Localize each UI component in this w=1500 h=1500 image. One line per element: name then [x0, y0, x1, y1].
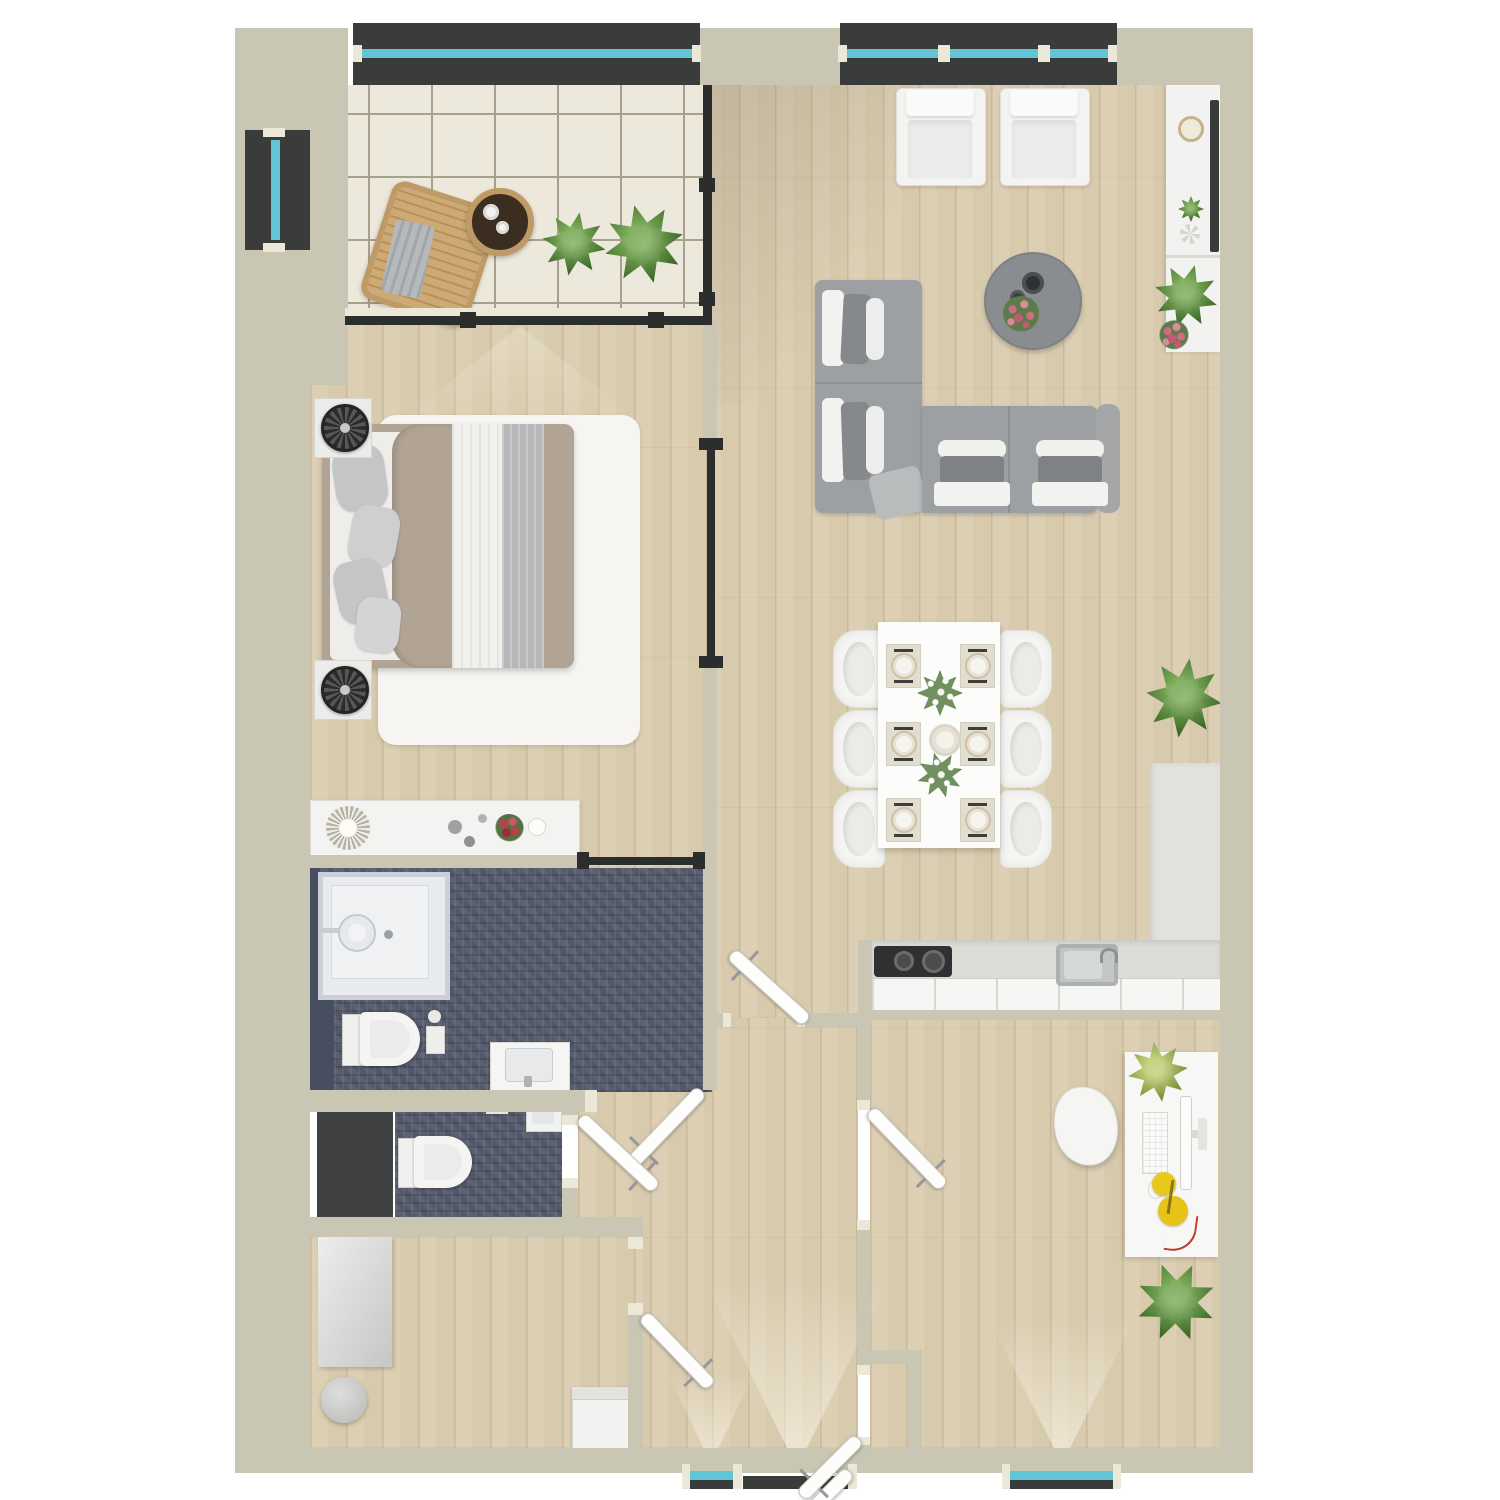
- plate-icon: [965, 807, 991, 833]
- decor-bowl-icon: [448, 820, 462, 834]
- sofa-pillow: [940, 456, 1004, 484]
- door-track-cap: [577, 852, 589, 869]
- rail-post: [648, 312, 664, 328]
- chair-seat: [1010, 722, 1042, 777]
- sofa-section-divider: [815, 382, 922, 384]
- decor-bowl-icon: [464, 836, 475, 847]
- glazing-office-window: [1010, 1471, 1113, 1480]
- plate-icon: [965, 653, 991, 679]
- rail-post: [699, 178, 715, 192]
- plate-icon: [965, 731, 991, 757]
- sink-bowl: [1064, 951, 1102, 979]
- sill-office-window: [1010, 1480, 1113, 1489]
- door-jamb: [628, 1303, 643, 1315]
- storage-cabinet: [318, 1237, 392, 1367]
- kitchen-cabinet-fronts: [872, 978, 1220, 1011]
- window-end-cap: [353, 45, 362, 62]
- place-setting: [960, 798, 995, 842]
- wall-corridor-stub-left: [703, 1013, 723, 1027]
- monitor-icon: [1180, 1096, 1192, 1190]
- wall-kitchen-office: [858, 1010, 1220, 1020]
- wall-wc-storage: [310, 1217, 643, 1237]
- window-mullion: [938, 45, 950, 62]
- armchair-cushion: [906, 90, 974, 116]
- wall-outer-left: [235, 385, 310, 1448]
- place-setting: [886, 644, 921, 688]
- place-setting: [886, 722, 921, 766]
- wall-top-right-corner: [1117, 28, 1220, 85]
- window-end-cap: [263, 243, 285, 252]
- toilet-seat: [370, 1020, 410, 1058]
- wall-storage-right: [628, 1315, 643, 1448]
- burner-icon: [894, 951, 914, 971]
- decor-bowl-icon: [478, 814, 487, 823]
- sofa-pillow: [866, 406, 884, 474]
- armchair-seat: [1012, 120, 1076, 178]
- white-flower-icon: [1180, 224, 1200, 244]
- door-jamb: [562, 1178, 578, 1188]
- door-jamb: [628, 1237, 643, 1249]
- window-end-cap: [838, 45, 847, 62]
- door-track-cap: [699, 656, 723, 668]
- wall-top-mid: [700, 28, 840, 85]
- bathroom-dark-strip-2: [310, 985, 334, 1092]
- bed-throw-gray: [502, 424, 546, 668]
- coffee-table-flowers: [1000, 296, 1042, 334]
- bedroom-sliding-door: [707, 450, 715, 656]
- glazing-balcony-side: [271, 140, 280, 240]
- wc-closet: [317, 1102, 393, 1220]
- wall-bedroom-bathroom: [310, 855, 585, 868]
- nightstand-lamp-icon: [321, 404, 369, 452]
- keyboard-icon: [1142, 1112, 1168, 1174]
- window-end-cap: [263, 128, 285, 137]
- toilet-seat: [424, 1144, 462, 1180]
- burner-icon: [922, 950, 945, 973]
- wall-closet-right: [908, 1350, 922, 1448]
- wall-hall-office-upper: [857, 1018, 870, 1110]
- wall-hall-office-mid: [857, 1220, 870, 1375]
- sideboard-plant-icon: [1178, 196, 1204, 222]
- monitor-base: [1198, 1118, 1207, 1150]
- dining-chair: [1000, 630, 1052, 708]
- place-setting: [960, 722, 995, 766]
- toilet-brush-icon: [428, 1010, 441, 1023]
- wall-outer-right: [1220, 28, 1253, 1473]
- dining-chair: [1000, 790, 1052, 868]
- shower-drain-icon: [384, 930, 393, 939]
- cup-icon: [483, 204, 499, 220]
- place-setting: [960, 644, 995, 688]
- wall-kitchen-stub: [858, 940, 872, 1010]
- decor-dish-icon: [528, 818, 546, 836]
- sofa-pillow: [1038, 456, 1102, 484]
- nightstand-lamp-icon: [321, 666, 369, 714]
- sofa-cushion: [934, 482, 1010, 506]
- sill-hall-window: [690, 1480, 733, 1489]
- chair-seat: [843, 642, 875, 697]
- window-end-cap: [1108, 45, 1117, 62]
- chair-seat: [1010, 642, 1042, 697]
- sideboard-divider: [1166, 255, 1220, 258]
- wall-wc-right-top: [562, 1102, 578, 1115]
- decor-bowl-icon: [1178, 116, 1204, 142]
- glazing-hall-window: [690, 1471, 733, 1480]
- door-track-cap: [699, 438, 723, 450]
- kitchen-counter-tall: [1150, 763, 1220, 945]
- decor-bowl-icon: [1022, 272, 1044, 294]
- glazing-living-top: [846, 49, 1111, 58]
- place-setting: [886, 798, 921, 842]
- armchair-seat: [908, 120, 972, 178]
- window-jamb: [733, 1464, 742, 1489]
- window-jamb: [682, 1464, 690, 1489]
- bed-pillow: [353, 596, 402, 654]
- tv-icon: [1210, 100, 1219, 252]
- bathroom-sliding-door: [585, 857, 697, 865]
- door-jamb: [857, 1220, 870, 1230]
- armchair-cushion: [1010, 90, 1078, 116]
- window-jamb: [1113, 1464, 1121, 1489]
- dresser-red-flowers: [494, 814, 524, 844]
- wall-bathroom-wc: [310, 1090, 585, 1112]
- window-end-cap: [692, 45, 701, 62]
- chair-seat: [1010, 802, 1042, 857]
- door-jamb: [585, 1090, 597, 1112]
- door-jamb: [857, 1100, 870, 1110]
- bed-duvet-foot: [544, 424, 574, 668]
- window-jamb: [1002, 1464, 1010, 1489]
- faucet-icon: [1100, 948, 1118, 963]
- balcony-rail-right: [703, 85, 712, 316]
- wall-bedroom-living-upper: [703, 322, 717, 440]
- chair-seat: [843, 722, 875, 777]
- storage-stool: [321, 1377, 367, 1423]
- appliance-panel: [572, 1387, 628, 1400]
- chair-seat: [843, 802, 875, 857]
- cup-icon: [496, 221, 509, 234]
- plate-icon: [891, 653, 917, 679]
- door-track-cap: [693, 852, 705, 869]
- center-dish-icon: [929, 724, 961, 756]
- sofa-pillow: [866, 298, 884, 360]
- vanity-faucet-icon: [524, 1076, 532, 1087]
- plate-icon: [891, 731, 917, 757]
- rail-post: [699, 292, 715, 306]
- door-jamb: [723, 1013, 731, 1027]
- sideboard-pink-flowers: [1158, 320, 1190, 352]
- door-jamb: [562, 1115, 578, 1125]
- bath-accessory: [426, 1026, 445, 1054]
- window-mullion: [1038, 45, 1050, 62]
- sofa-cushion: [1032, 482, 1108, 506]
- floor-plan: [0, 0, 1500, 1500]
- rail-post: [460, 312, 476, 328]
- door-jamb: [857, 1365, 870, 1375]
- shower-head-icon: [338, 914, 376, 952]
- glazing-balcony-top: [362, 49, 692, 58]
- bed-throw-white: [452, 424, 504, 668]
- sunburst-decor-icon: [326, 806, 370, 850]
- dining-chair: [1000, 710, 1052, 788]
- table-centerpiece: [917, 670, 963, 716]
- wall-outer-bottom: [235, 1448, 1253, 1473]
- plate-icon: [891, 807, 917, 833]
